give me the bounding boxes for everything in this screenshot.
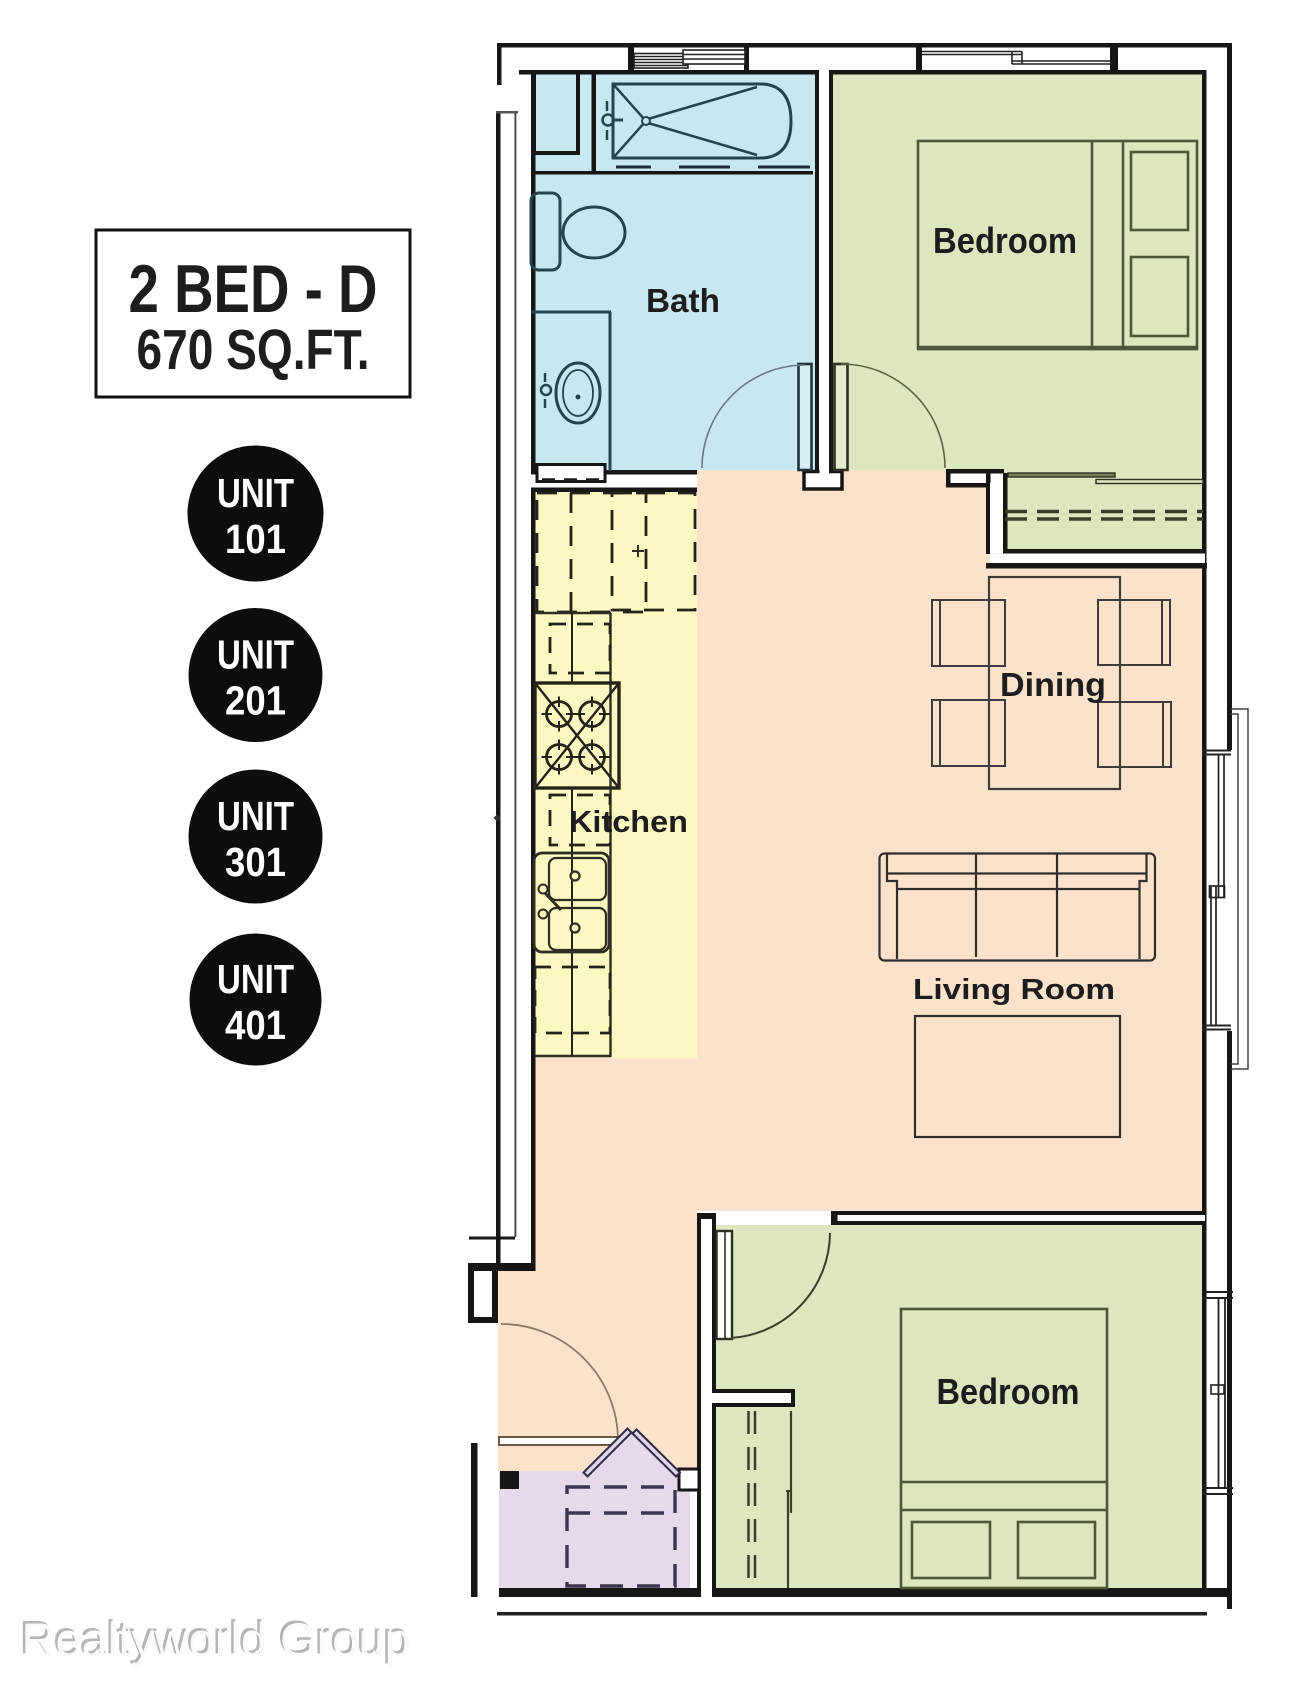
svg-text:Bedroom: Bedroom — [933, 220, 1077, 261]
svg-text:301: 301 — [225, 839, 286, 885]
svg-text:401: 401 — [225, 1002, 286, 1048]
svg-text:201: 201 — [225, 678, 286, 724]
svg-text:UNIT: UNIT — [217, 470, 294, 516]
svg-text:Bath: Bath — [646, 282, 720, 319]
svg-text:Dining: Dining — [1000, 666, 1106, 703]
svg-text:Bedroom: Bedroom — [937, 1371, 1080, 1412]
svg-text:UNIT: UNIT — [217, 632, 294, 678]
svg-text:Living Room: Living Room — [913, 974, 1115, 1006]
svg-text:Realtyworld Group: Realtyworld Group — [22, 1613, 411, 1666]
svg-text:670 SQ.FT.: 670 SQ.FT. — [137, 318, 370, 382]
svg-text:2 BED - D: 2 BED - D — [129, 251, 378, 327]
svg-text:UNIT: UNIT — [217, 793, 294, 839]
svg-text:Kitchen: Kitchen — [569, 804, 688, 839]
svg-text:101: 101 — [225, 516, 286, 562]
svg-text:UNIT: UNIT — [217, 956, 294, 1002]
